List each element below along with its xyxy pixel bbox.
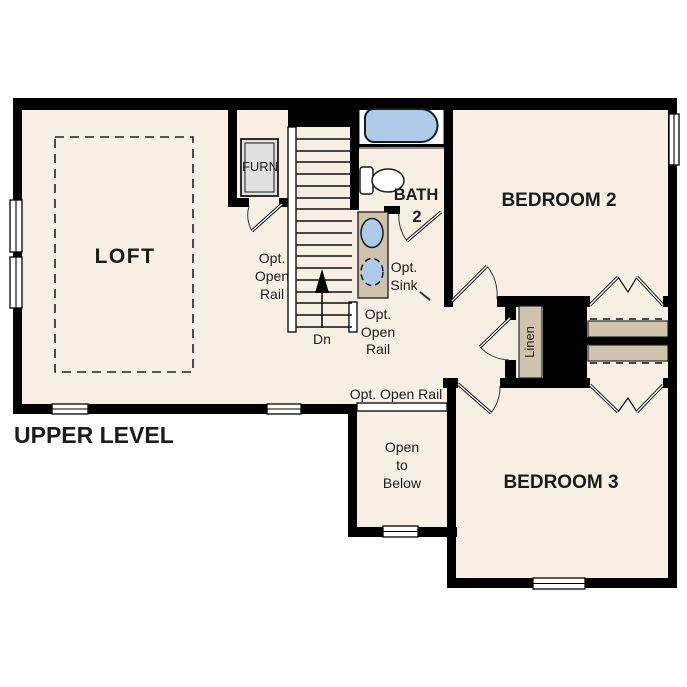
wall-segment — [663, 378, 677, 388]
wall-segment — [444, 110, 453, 307]
closet-shelf — [588, 321, 668, 337]
open-rail — [288, 127, 296, 332]
wall-segment — [505, 296, 516, 320]
optional-sink-basin — [361, 259, 383, 286]
furnace-label: FURN — [242, 159, 278, 174]
floor-plan-canvas: LOFT BEDROOM 2 BEDROOM 3 BATH 2 UPPER LE… — [0, 0, 687, 687]
opt-open-rail-label: Rail — [366, 341, 390, 357]
wall-segment — [13, 98, 22, 414]
opt-sink-label: Sink — [390, 277, 418, 293]
bathtub — [365, 109, 438, 142]
opt-open-rail-label: Open — [361, 324, 395, 340]
open-to-below-label: Open — [385, 439, 419, 455]
wall-segment — [668, 98, 677, 588]
room-label-loft: LOFT — [95, 245, 156, 268]
opt-open-rail-label: Open — [255, 268, 289, 284]
room-label-bedroom3: BEDROOM 3 — [503, 472, 618, 493]
opt-open-rail-label: Opt. — [365, 306, 391, 322]
room-label-bath: BATH — [394, 186, 439, 204]
wall-segment — [228, 198, 249, 207]
wall-segment — [663, 296, 677, 307]
room-label-bath-2: 2 — [412, 208, 421, 226]
linen-label: Linen — [522, 326, 537, 358]
opt-open-rail-label: Opt. — [259, 250, 285, 266]
wall-segment — [348, 404, 357, 537]
opt-sink-label: Opt. — [391, 259, 417, 275]
wall-segment — [350, 110, 359, 210]
wall-segment — [447, 378, 456, 588]
room-label-bedroom2: BEDROOM 2 — [501, 190, 616, 211]
wall-segment — [505, 360, 516, 388]
wall-segment — [443, 378, 458, 388]
open-rail — [357, 403, 447, 411]
sink-basin — [361, 219, 383, 248]
open-to-below-label: to — [396, 457, 408, 473]
wall-chase — [543, 296, 587, 388]
opt-open-rail-label: Rail — [260, 286, 284, 302]
toilet-tank — [360, 167, 373, 194]
stairs-down-label: Dn — [313, 331, 331, 347]
wall-segment — [288, 98, 359, 127]
open-to-below-label: Below — [383, 475, 422, 491]
wall-segment — [587, 337, 668, 345]
opt-open-rail-label: Opt. Open Rail — [350, 386, 443, 402]
wall-segment — [359, 144, 444, 147]
wall-segment — [228, 98, 237, 207]
page-title: UPPER LEVEL — [14, 422, 174, 448]
floor-plan: LOFT BEDROOM 2 BEDROOM 3 BATH 2 UPPER LE… — [0, 0, 687, 687]
closet-shelf — [588, 345, 668, 361]
